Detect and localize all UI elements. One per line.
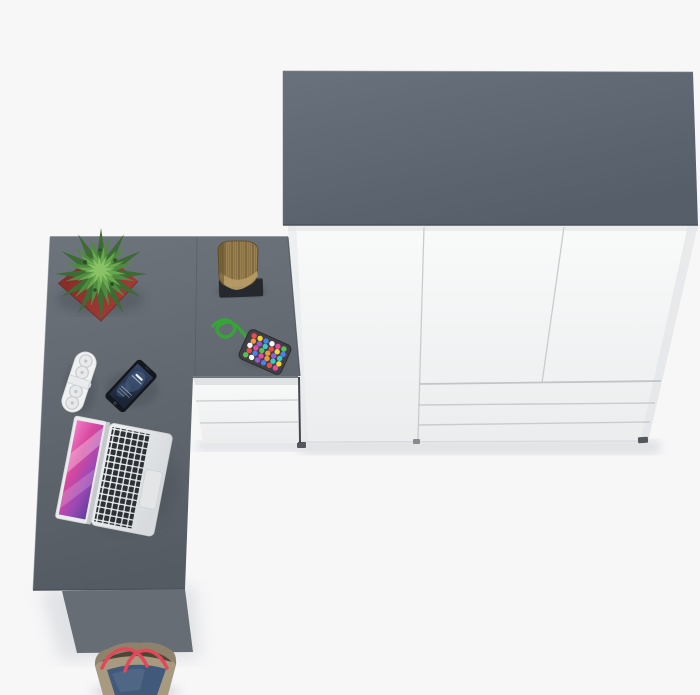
wardrobe: [283, 71, 698, 448]
wardrobe-foot-middle: [413, 439, 420, 444]
pedestal-front: [193, 377, 298, 443]
tote-bag: [95, 643, 176, 695]
wardrobe-front: [288, 225, 698, 442]
render-canvas: [0, 0, 700, 695]
laptop: [55, 416, 173, 537]
pedestal-wardrobe-gap: [299, 377, 300, 443]
wood-log-group: [218, 241, 263, 298]
desk-drawer-unit: [193, 377, 300, 443]
wardrobe-top-panel: [283, 71, 698, 225]
product-render: [0, 0, 700, 695]
wardrobe-top-shadow-band: [288, 225, 698, 231]
pedestal-top-shadow: [193, 377, 298, 385]
wardrobe-foot-right: [638, 437, 648, 444]
wardrobe-foot-left: [297, 442, 306, 448]
